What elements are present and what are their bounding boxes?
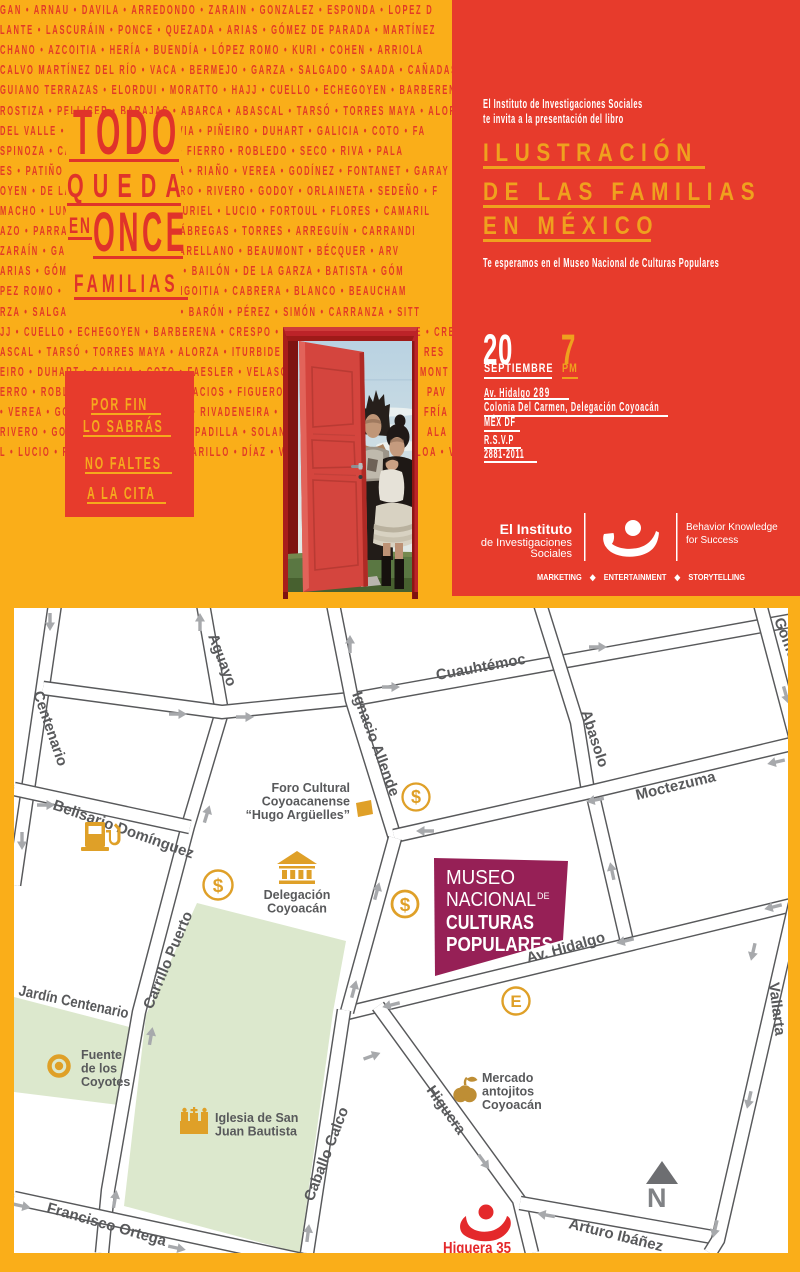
svg-text:$: $ — [411, 787, 421, 807]
svg-text:DelegaciónCoyoacán: DelegaciónCoyoacán — [264, 888, 331, 916]
svg-text:MARKETING ◆ ENTERTAINMEN: MARKETING ◆ ENTERTAINMENT ◆ STORYTELLING — [537, 572, 745, 582]
svg-text:$: $ — [400, 894, 411, 915]
svg-text:Behavior Knowledgefor Success: Behavior Knowledgefor Success — [686, 522, 778, 546]
svg-text:Higuera 35: Higuera 35 — [443, 1240, 511, 1257]
svg-text:El Institutode Investigaciones: El Institutode InvestigacionesSociales — [481, 521, 573, 560]
svg-text:E: E — [510, 992, 521, 1011]
svg-text:$: $ — [213, 876, 224, 897]
svg-text:N: N — [647, 1183, 667, 1213]
svg-text:Iglesia de SanJuan Bautista: Iglesia de SanJuan Bautista — [215, 1111, 298, 1139]
svg-text:MercadoantojitosCoyoacán: MercadoantojitosCoyoacán — [482, 1071, 542, 1112]
